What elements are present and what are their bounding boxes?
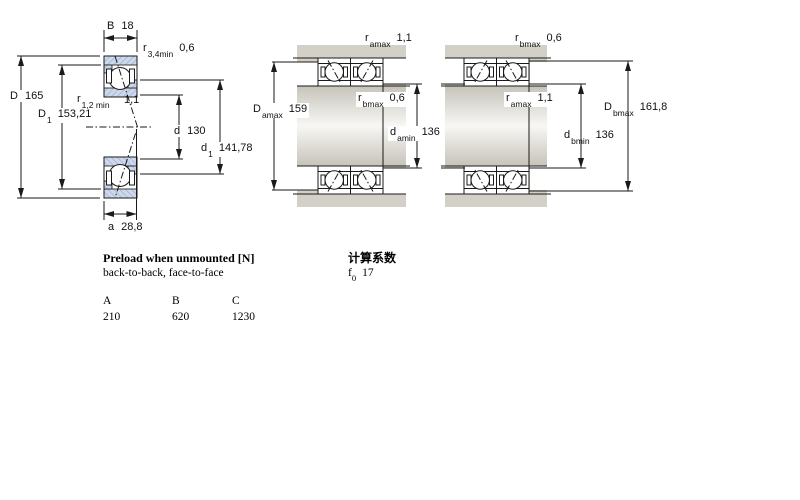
preload-col-a: A [103, 295, 111, 308]
preload-subtitle: back-to-back, face-to-face [103, 267, 224, 280]
preload-col-b: B [172, 295, 180, 308]
dim-label-rbmax-b: rbmax0,6 [515, 32, 562, 47]
technical-drawing [0, 0, 800, 500]
calculation-title: 计算系数 [348, 252, 396, 265]
dim-label-ramax-a: ramax1,1 [365, 32, 412, 47]
dim-label-r34: r3,4min0,6 [143, 42, 194, 57]
dim-label-d: d130 [172, 125, 207, 137]
preload-title: Preload when unmounted [N] [103, 252, 254, 265]
dim-label-big-d: D165 [8, 90, 45, 102]
dim-label-rbmax-a: rbmax0,6 [356, 92, 407, 107]
dim-label-dbmin: dbmin136 [564, 129, 614, 144]
dim-label-a: a28,8 [108, 221, 143, 233]
dim-label-r12-value: 1,1 [124, 94, 139, 106]
mounting-diagram-b [441, 45, 633, 207]
dim-label-d1: d1141,78 [199, 142, 255, 157]
calculation-factor: f017 [348, 267, 374, 283]
preload-value-a: 210 [103, 311, 120, 324]
preload-col-c: C [232, 295, 240, 308]
preload-value-c: 1230 [232, 311, 255, 324]
bearing-datasheet-figure: B18 r3,4min0,6 D165 D1153,21 r1,2 min 1,… [0, 0, 800, 500]
preload-value-b: 620 [172, 311, 189, 324]
dim-label-big-d1: D1153,21 [36, 108, 93, 123]
dim-label-damax-cap: Damax159 [251, 103, 309, 118]
dim-label-b: B18 [107, 20, 134, 32]
dim-label-dbmax-cap: Dbmax161,8 [604, 101, 667, 116]
dim-label-ramax-b: ramax1,1 [504, 92, 555, 107]
dim-label-damin: damin136 [388, 126, 442, 141]
dim-label-r12: r1,2 min [77, 93, 109, 108]
